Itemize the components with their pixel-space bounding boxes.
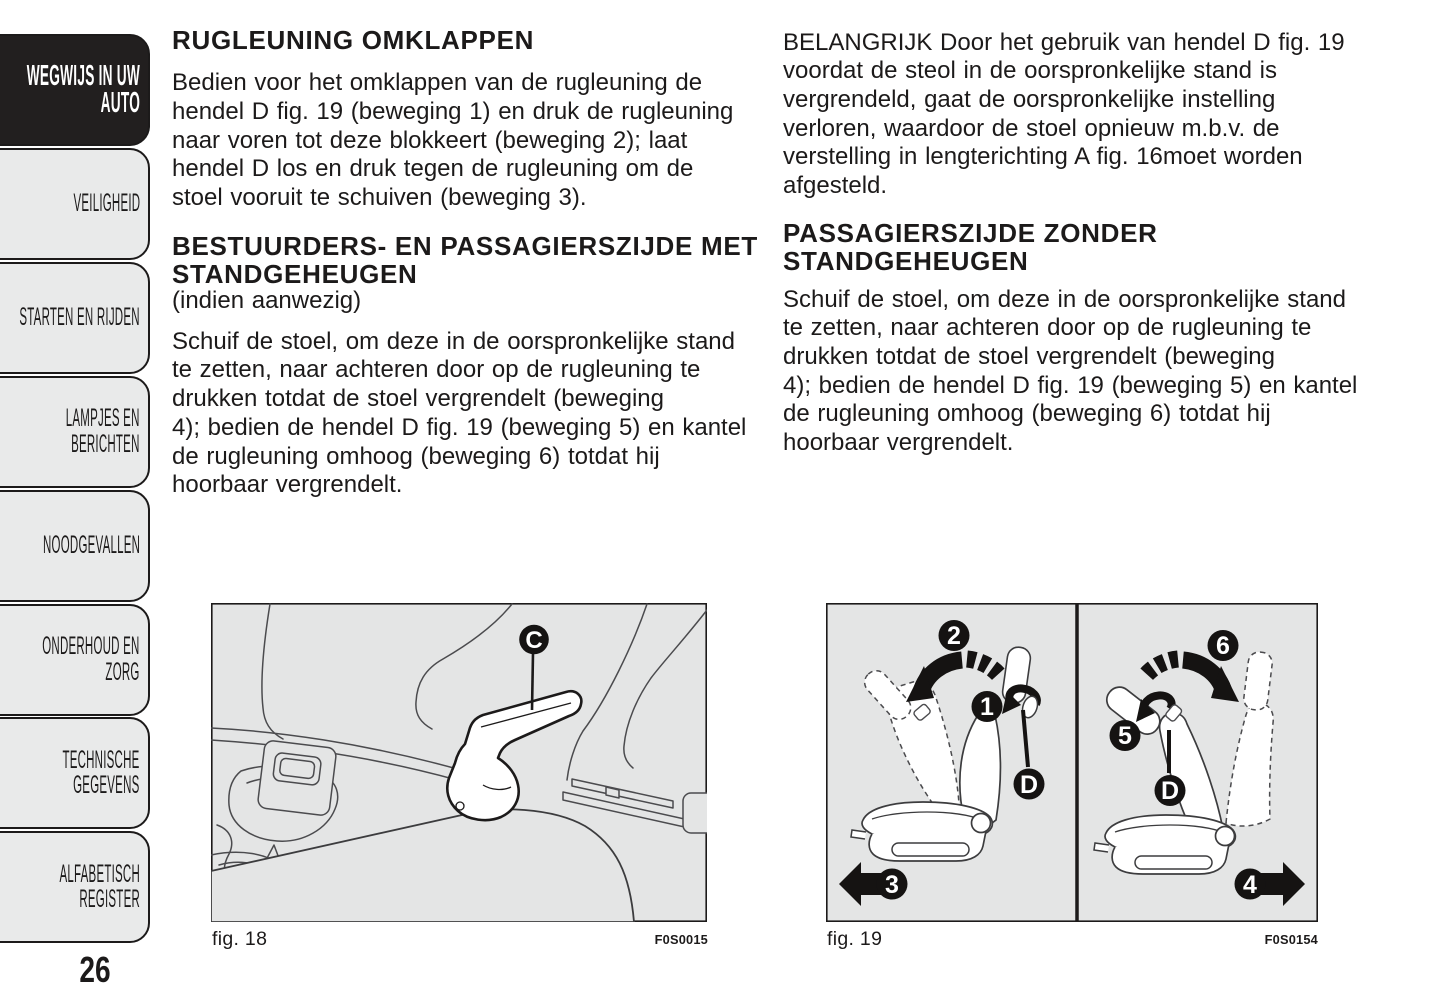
svg-text:D: D [1020,771,1038,799]
svg-text:2: 2 [947,622,961,650]
svg-text:C: C [525,627,542,654]
svg-text:D: D [1161,777,1179,805]
svg-text:1: 1 [980,693,994,721]
svg-text:3: 3 [885,871,899,899]
svg-text:4: 4 [1243,871,1257,899]
svg-text:6: 6 [1216,632,1230,660]
svg-text:5: 5 [1118,722,1132,750]
